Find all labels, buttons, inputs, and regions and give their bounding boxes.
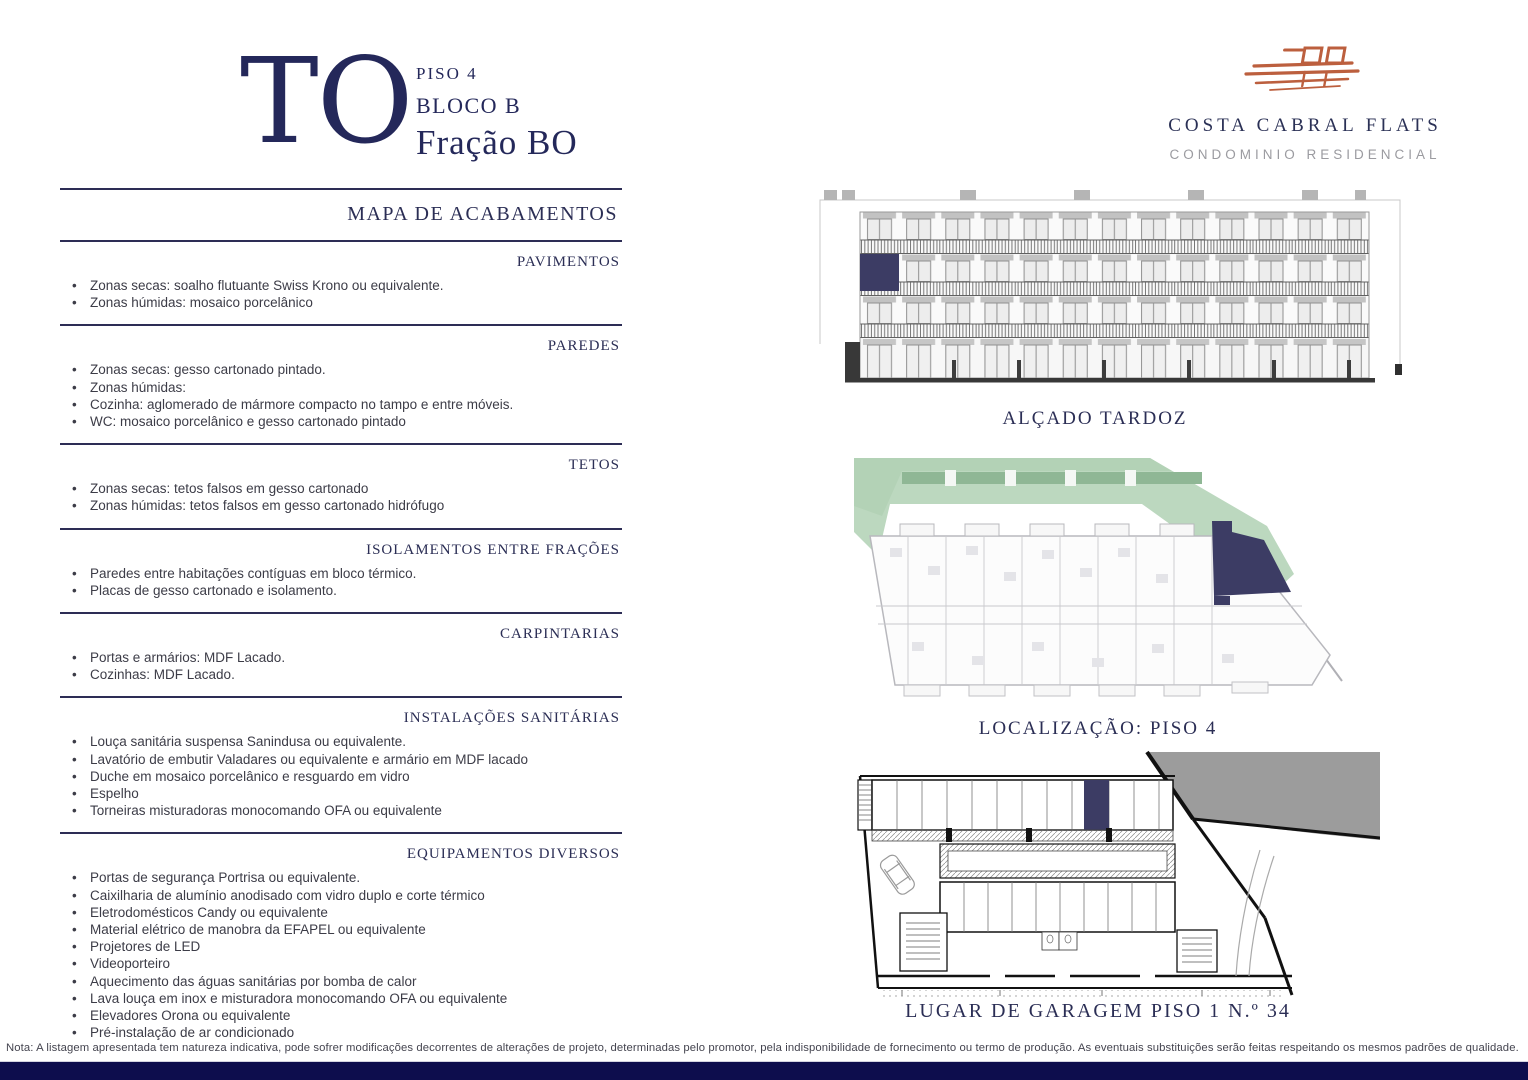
spec-item: WC: mosaico porcelânico e gesso cartonad… <box>60 413 622 430</box>
elevation-label: ALÇADO TARDOZ <box>790 408 1400 430</box>
spec-section-heading: INSTALAÇÕES SANITÁRIAS <box>60 704 622 733</box>
spec-section-heading: TETOS <box>60 451 622 480</box>
spec-section: TETOS Zonas secas: tetos falsos em gesso… <box>60 445 622 529</box>
spec-item: Pré-instalação de ar condicionado <box>60 1024 622 1041</box>
spec-item: Eletrodomésticos Candy ou equivalente <box>60 904 622 921</box>
spec-section: CARPINTARIAS Portas e armários: MDF Laca… <box>60 614 622 698</box>
spec-item: Lava louça em inox e misturadora monocom… <box>60 990 622 1007</box>
garage-label: LUGAR DE GARAGEM PISO 1 N.º 34 <box>828 1000 1368 1023</box>
brand-name: COSTA CABRAL FLATS <box>1160 115 1450 137</box>
spec-sections: PAVIMENTOS Zonas secas: soalho flutuante… <box>60 242 622 1054</box>
spec-item: Espelho <box>60 785 622 802</box>
spec-section: PAVIMENTOS Zonas secas: soalho flutuante… <box>60 242 622 326</box>
spec-item: Projetores de LED <box>60 938 622 955</box>
car-sketch <box>878 853 917 897</box>
spec-section-list: Zonas secas: soalho flutuante Swiss Kron… <box>60 277 622 311</box>
unit-code: TO <box>240 40 411 164</box>
spec-section-list: Zonas secas: tetos falsos em gesso carto… <box>60 480 622 514</box>
unit-subtitle-block: PISO 4 BLOCO B Fração BO <box>416 64 578 163</box>
spec-section-list: Paredes entre habitações contíguas em bl… <box>60 565 622 599</box>
spec-section: EQUIPAMENTOS DIVERSOS Portas de seguranç… <box>60 834 622 1054</box>
fraction-label: Fração BO <box>416 123 578 163</box>
footer-bar <box>0 1061 1528 1080</box>
spec-item: Aquecimento das águas sanitárias por bom… <box>60 973 622 990</box>
spec-section-heading: CARPINTARIAS <box>60 620 622 649</box>
spec-section-heading: ISOLAMENTOS ENTRE FRAÇÕES <box>60 536 622 565</box>
brand-block: COSTA CABRAL FLATS CONDOMINIO RESIDENCIA… <box>1160 42 1450 162</box>
spec-section: ISOLAMENTOS ENTRE FRAÇÕES Paredes entre … <box>60 530 622 614</box>
spec-section-list: Portas de segurança Portrisa ou equivale… <box>60 869 622 1041</box>
spec-section: PAREDES Zonas secas: gesso cartonado pin… <box>60 326 622 445</box>
spec-item: Torneiras misturadoras monocomando OFA o… <box>60 802 622 819</box>
spec-item: Placas de gesso cartonado e isolamento. <box>60 582 622 599</box>
spec-section-heading: EQUIPAMENTOS DIVERSOS <box>60 840 622 869</box>
spec-item: Zonas húmidas: tetos falsos em gesso car… <box>60 497 622 514</box>
roof-vents <box>824 190 1366 200</box>
spec-item: Zonas secas: tetos falsos em gesso carto… <box>60 480 622 497</box>
block-label: BLOCO B <box>416 93 578 119</box>
spec-section-list: Portas e armários: MDF Lacado.Cozinhas: … <box>60 649 622 683</box>
spec-item: Paredes entre habitações contíguas em bl… <box>60 565 622 582</box>
spec-section-list: Zonas secas: gesso cartonado pintado.Zon… <box>60 361 622 430</box>
spec-section-heading: PAVIMENTOS <box>60 248 622 277</box>
spec-item: Duche em mosaico porcelânico e resguardo… <box>60 768 622 785</box>
building-sketch-icon <box>1240 42 1370 106</box>
spec-item: Elevadores Orona ou equivalente <box>60 1007 622 1024</box>
spec-item: Caixilharia de alumínio anodisado com vi… <box>60 887 622 904</box>
spec-item: Portas e armários: MDF Lacado. <box>60 649 622 666</box>
spec-item: Louça sanitária suspensa Sanindusa ou eq… <box>60 733 622 750</box>
spec-item: Cozinhas: MDF Lacado. <box>60 666 622 683</box>
brand-subtitle: CONDOMINIO RESIDENCIAL <box>1160 147 1450 162</box>
spec-item: Portas de segurança Portrisa ou equivale… <box>60 869 622 886</box>
spec-item: Material elétrico de manobra da EFAPEL o… <box>60 921 622 938</box>
rear-elevation-drawing <box>812 186 1412 394</box>
floor-label: PISO 4 <box>416 64 578 84</box>
property-spec-sheet: { "theme": { "navy": "#24285a", "heading… <box>0 0 1528 1080</box>
spec-item: Zonas húmidas: mosaico porcelânico <box>60 294 622 311</box>
highlighted-garage-stall <box>1084 780 1109 830</box>
spec-section: INSTALAÇÕES SANITÁRIAS Louça sanitária s… <box>60 698 622 834</box>
spec-section-list: Louça sanitária suspensa Sanindusa ou eq… <box>60 733 622 819</box>
finishes-map-title: MAPA DE ACABAMENTOS <box>60 190 622 242</box>
spec-item: Zonas secas: gesso cartonado pintado. <box>60 361 622 378</box>
spec-item: Cozinha: aglomerado de mármore compacto … <box>60 396 622 413</box>
garage-plan <box>840 748 1380 998</box>
spec-section-heading: PAREDES <box>60 332 622 361</box>
floor-location-plan <box>842 446 1366 708</box>
spec-item: Lavatório de embutir Valadares ou equiva… <box>60 751 622 768</box>
highlighted-unit-elevation <box>860 254 899 291</box>
spec-item: Zonas secas: soalho flutuante Swiss Kron… <box>60 277 622 294</box>
location-label: LOCALIZAÇÃO: PISO 4 <box>828 718 1368 740</box>
disclaimer-note: Nota: A listagem apresentada tem naturez… <box>6 1042 1526 1054</box>
spec-item: Videoporteiro <box>60 955 622 972</box>
spec-item: Zonas húmidas: <box>60 379 622 396</box>
finishes-map: MAPA DE ACABAMENTOS PAVIMENTOS Zonas sec… <box>60 188 622 1054</box>
